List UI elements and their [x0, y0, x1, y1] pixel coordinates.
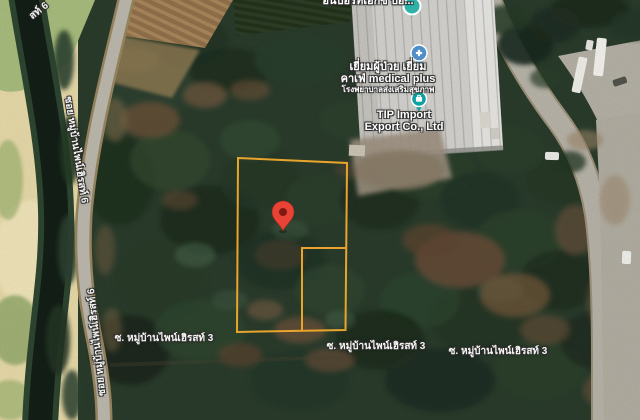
- tip-import-line2: Export Co., Ltd: [365, 122, 444, 134]
- property-boundary[interactable]: [237, 158, 347, 332]
- poi-label-import-partial[interactable]: อินปอร์ทเอ็กซ์ ป้อ...: [322, 0, 413, 8]
- road-label-soi3-west[interactable]: ซ. หมู่บ้านไพน์เฮิรสท์ 3: [115, 334, 214, 345]
- satellite-map[interactable]: อินปอร์ทเอ็กซ์ ป้อ... เยี่ยมผู้ป่วย เยี่…: [0, 0, 640, 420]
- poi-label-medical-cafe[interactable]: เยี่ยมผู้ป่วย เยี่ยม คาเฟ่ medical plus …: [341, 62, 436, 94]
- poi-label-tip-import[interactable]: TIP Import Export Co., Ltd: [365, 110, 444, 134]
- road-label-soi3-east[interactable]: ซ. หมู่บ้านไพน์เฮิรสท์ 3: [449, 347, 548, 358]
- road-label-soi3-center[interactable]: ซ. หมู่บ้านไพน์เฮิรสท์ 3: [327, 342, 426, 353]
- medical-cafe-line3: โรงพยาบาลส่งเสริมสุขภาพ: [341, 86, 436, 95]
- medical-cafe-line2: คาเฟ่ medical plus: [341, 74, 436, 86]
- red-location-pin[interactable]: [272, 201, 294, 233]
